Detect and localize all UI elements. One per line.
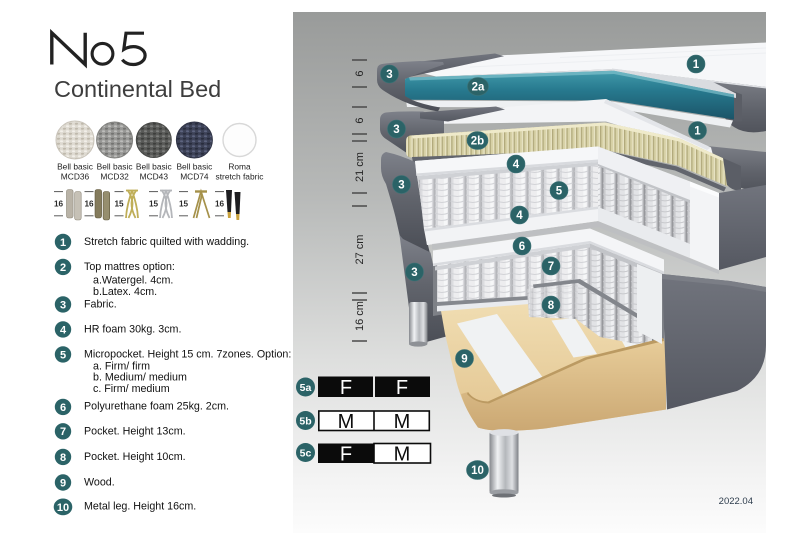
svg-text:MCD74: MCD74 <box>180 172 209 182</box>
svg-text:27 cm: 27 cm <box>354 235 366 265</box>
svg-text:16 cm: 16 cm <box>354 301 366 331</box>
svg-text:Wood.: Wood. <box>84 477 115 489</box>
svg-text:16: 16 <box>215 200 225 209</box>
svg-text:MCD43: MCD43 <box>140 172 169 182</box>
svg-text:M: M <box>338 411 355 433</box>
svg-text:7: 7 <box>60 426 66 438</box>
svg-text:Pocket. Height 13cm.: Pocket. Height 13cm. <box>84 425 186 437</box>
svg-text:2a: 2a <box>472 82 485 94</box>
svg-text:Stretch fabric quilted with wa: Stretch fabric quilted with wadding. <box>84 236 249 248</box>
svg-text:8: 8 <box>548 300 555 312</box>
svg-text:c. Firm/ medium: c. Firm/ medium <box>93 383 170 395</box>
svg-text:6: 6 <box>519 241 525 253</box>
svg-text:2022.04: 2022.04 <box>719 496 753 507</box>
svg-text:Micropocket. Height 15 cm. 7zo: Micropocket. Height 15 cm. 7zones. Optio… <box>84 349 291 361</box>
svg-text:9: 9 <box>461 354 467 366</box>
svg-text:HR foam 30kg. 3cm.: HR foam 30kg. 3cm. <box>84 324 181 336</box>
svg-text:Continental Bed: Continental Bed <box>54 76 221 102</box>
svg-text:Bell basic: Bell basic <box>136 162 172 172</box>
svg-text:10: 10 <box>57 502 69 514</box>
svg-text:5: 5 <box>556 186 563 198</box>
svg-text:15: 15 <box>179 200 189 209</box>
svg-text:4: 4 <box>513 159 520 171</box>
svg-text:3: 3 <box>398 180 404 192</box>
svg-text:5b: 5b <box>299 416 311 428</box>
svg-text:3: 3 <box>411 267 417 279</box>
svg-text:1: 1 <box>693 59 700 71</box>
svg-text:stretch fabric: stretch fabric <box>216 172 264 182</box>
svg-text:5a: 5a <box>300 382 312 394</box>
svg-text:7: 7 <box>548 261 554 273</box>
svg-text:1: 1 <box>60 237 66 249</box>
svg-text:6: 6 <box>354 117 366 123</box>
svg-text:b. Medium/ medium: b. Medium/ medium <box>93 372 187 384</box>
svg-text:Pocket. Height 10cm.: Pocket. Height 10cm. <box>84 451 186 463</box>
svg-text:Bell basic: Bell basic <box>57 162 93 172</box>
svg-text:3: 3 <box>393 124 399 136</box>
svg-text:9: 9 <box>60 477 66 489</box>
svg-text:3: 3 <box>60 299 66 311</box>
svg-text:5: 5 <box>60 349 66 361</box>
svg-text:21 cm: 21 cm <box>354 152 366 182</box>
svg-text:a.Watergel. 4cm.: a.Watergel. 4cm. <box>93 275 173 287</box>
svg-text:16: 16 <box>54 200 64 209</box>
svg-text:F: F <box>340 444 352 466</box>
svg-text:1: 1 <box>694 126 701 138</box>
svg-text:3: 3 <box>386 69 392 81</box>
svg-text:F: F <box>340 377 352 399</box>
svg-text:Polyurethane foam 25kg. 2cm.: Polyurethane foam 25kg. 2cm. <box>84 400 229 412</box>
svg-text:Metal leg. Height 16cm.: Metal leg. Height 16cm. <box>84 500 196 512</box>
svg-text:4: 4 <box>60 324 67 336</box>
svg-text:Roma: Roma <box>228 162 251 172</box>
svg-text:a. Firm/ firm: a. Firm/ firm <box>93 360 150 372</box>
svg-text:4: 4 <box>516 210 523 222</box>
svg-text:10: 10 <box>471 465 484 477</box>
svg-text:MCD36: MCD36 <box>61 172 90 182</box>
svg-text:M: M <box>394 411 411 433</box>
svg-text:2: 2 <box>60 262 66 274</box>
svg-text:F: F <box>396 377 408 399</box>
svg-text:5c: 5c <box>300 448 312 460</box>
svg-text:M: M <box>394 444 411 466</box>
svg-text:Bell basic: Bell basic <box>176 162 212 172</box>
svg-text:MCD32: MCD32 <box>100 172 129 182</box>
svg-text:b.Latex. 4cm.: b.Latex. 4cm. <box>93 286 157 298</box>
svg-text:8: 8 <box>60 452 66 464</box>
svg-text:15: 15 <box>149 200 159 209</box>
svg-text:Bell basic: Bell basic <box>97 162 133 172</box>
svg-text:Fabric.: Fabric. <box>84 299 117 311</box>
svg-text:16: 16 <box>84 200 94 209</box>
svg-text:15: 15 <box>114 200 124 209</box>
svg-text:Top mattres option:: Top mattres option: <box>84 261 175 273</box>
svg-text:2b: 2b <box>471 136 484 148</box>
svg-text:6: 6 <box>60 402 66 414</box>
svg-text:6: 6 <box>354 70 366 76</box>
